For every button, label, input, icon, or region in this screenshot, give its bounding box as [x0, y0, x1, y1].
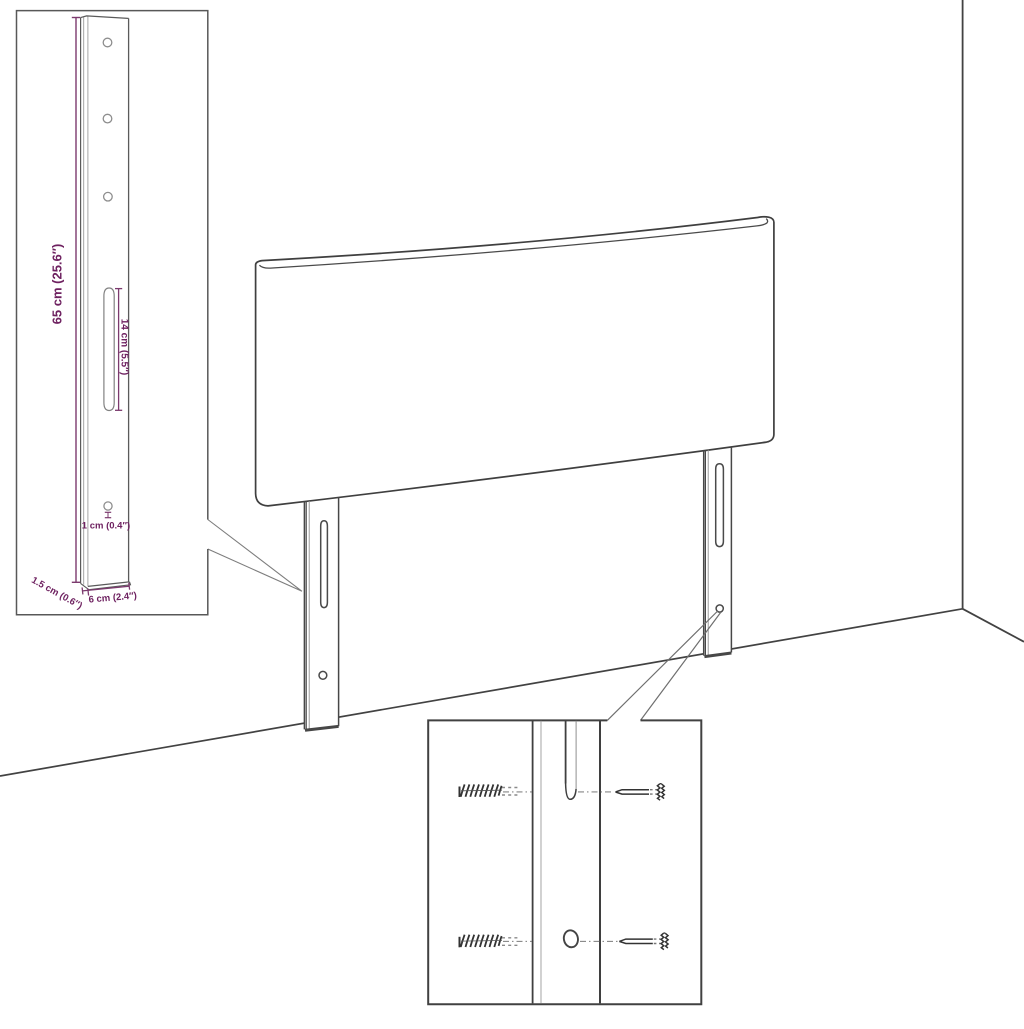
- svg-text:65 cm (25.6″): 65 cm (25.6″): [50, 244, 65, 325]
- svg-text:1 cm (0.4″): 1 cm (0.4″): [82, 521, 130, 532]
- svg-text:14 cm (5.5″): 14 cm (5.5″): [119, 319, 130, 375]
